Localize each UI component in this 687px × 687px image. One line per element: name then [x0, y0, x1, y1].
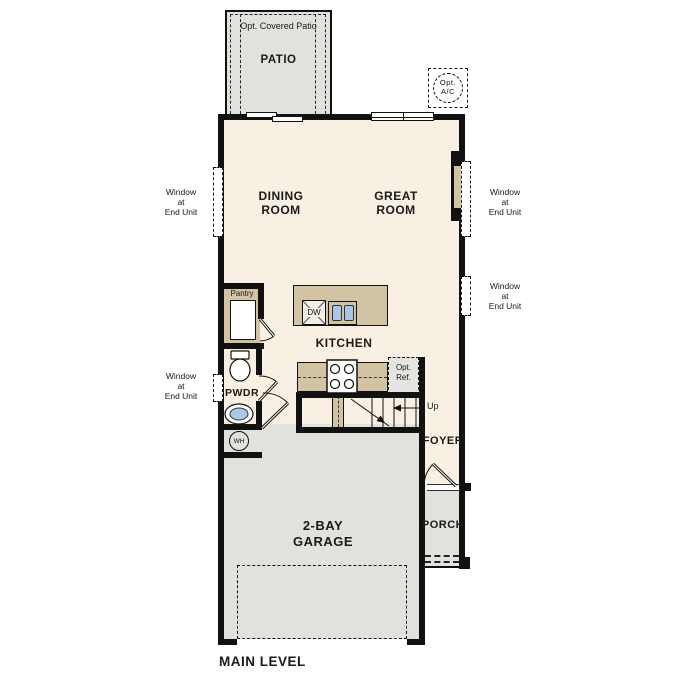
up-label: Up: [427, 401, 447, 412]
plan-title: MAIN LEVEL: [219, 654, 359, 670]
window-note-right-upper: Window at End Unit: [474, 187, 536, 218]
window-note-left-upper: Window at End Unit: [150, 187, 212, 218]
stair-break-arrowhead: [377, 416, 386, 424]
window-note-left-lower: Window at End Unit: [150, 371, 212, 402]
front-entry-door: [424, 464, 456, 486]
powder-room-label: PWDR: [222, 387, 262, 400]
dishwasher-label-box: DW: [302, 300, 326, 325]
garage-label: 2-BAY GARAGE: [263, 518, 383, 549]
kitchen-label: KITCHEN: [304, 336, 384, 350]
dishwasher-label: DW: [306, 308, 321, 317]
great-room-label: GREAT ROOM: [356, 189, 436, 218]
porch-label: PORCH: [420, 519, 466, 532]
floor-plan: Opt. Covered Patio PATIO Opt. A/C Pantry…: [0, 0, 687, 687]
garage-entry-door: [262, 393, 288, 428]
foyer-label: FOYER: [420, 435, 466, 448]
dining-room-label: DINING ROOM: [241, 189, 321, 218]
stove-icon: [327, 360, 357, 393]
stairs: [351, 398, 420, 427]
window-note-right-lower: Window at End Unit: [474, 281, 536, 312]
pantry-door: [260, 319, 274, 341]
toilet-icon: [230, 351, 250, 381]
powder-sink-icon: [225, 404, 253, 424]
